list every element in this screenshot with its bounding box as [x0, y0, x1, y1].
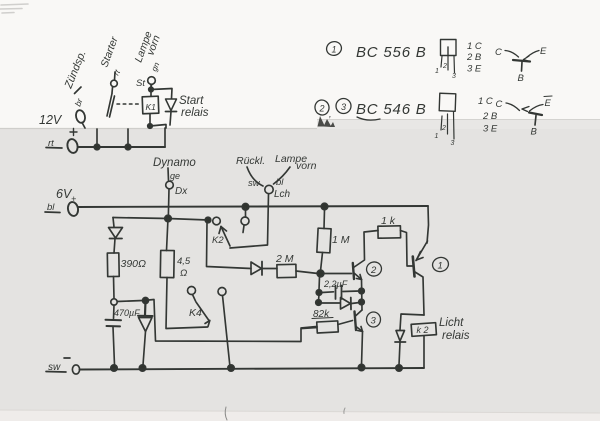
- svg-text:B: B: [531, 127, 538, 138]
- svg-text:2: 2: [319, 104, 325, 114]
- svg-text:Ω: Ω: [180, 268, 187, 279]
- svg-text:3: 3: [452, 73, 456, 80]
- svg-text:3: 3: [371, 316, 377, 327]
- svg-text:St: St: [136, 78, 145, 89]
- svg-text:vorn: vorn: [296, 160, 317, 172]
- svg-text:Start: Start: [179, 95, 204, 107]
- svg-text:2 B: 2 B: [466, 52, 482, 63]
- svg-text:k 2: k 2: [417, 325, 429, 335]
- svg-text:BC 556 B: BC 556 B: [356, 44, 427, 61]
- svg-text:1 k: 1 k: [381, 215, 396, 227]
- svg-text:12V: 12V: [39, 113, 63, 127]
- svg-text:3: 3: [341, 102, 346, 112]
- svg-text:2 B: 2 B: [482, 111, 498, 122]
- svg-text:,: ,: [329, 109, 332, 119]
- svg-text:1: 1: [435, 68, 439, 75]
- svg-text:Licht: Licht: [439, 317, 464, 329]
- svg-text:1 C: 1 C: [467, 41, 482, 52]
- svg-text:2: 2: [370, 265, 377, 276]
- svg-text:Dx: Dx: [175, 186, 188, 197]
- svg-text:relais: relais: [181, 107, 209, 119]
- svg-text:3: 3: [451, 140, 455, 147]
- svg-text:1: 1: [438, 261, 443, 272]
- svg-text:E: E: [540, 46, 547, 57]
- svg-text:E: E: [545, 98, 552, 109]
- svg-text:Dynamo: Dynamo: [153, 157, 196, 169]
- svg-text:Lch: Lch: [274, 189, 291, 200]
- svg-text:C: C: [496, 99, 503, 110]
- svg-text:ge: ge: [170, 171, 180, 181]
- svg-text:2: 2: [442, 63, 447, 70]
- svg-text:K2: K2: [212, 235, 224, 246]
- svg-text:K4: K4: [189, 307, 202, 319]
- svg-text:B: B: [518, 73, 525, 84]
- svg-text:4,5: 4,5: [177, 256, 191, 267]
- svg-text:390Ω: 390Ω: [121, 258, 147, 270]
- svg-text:bl: bl: [276, 177, 284, 188]
- svg-text:3 E: 3 E: [483, 124, 498, 135]
- svg-text:Rückl.: Rückl.: [236, 155, 265, 167]
- svg-text:1: 1: [435, 133, 439, 140]
- svg-text:2: 2: [441, 125, 446, 132]
- svg-text:C: C: [495, 47, 502, 58]
- svg-text:1 C: 1 C: [478, 96, 493, 107]
- svg-text:470µF: 470µF: [114, 308, 140, 318]
- svg-text:1 M: 1 M: [332, 234, 350, 246]
- svg-text:1: 1: [332, 45, 337, 55]
- svg-text:K1: K1: [146, 102, 157, 112]
- svg-text:relais: relais: [442, 330, 470, 342]
- svg-text:BC 546 B: BC 546 B: [356, 101, 427, 118]
- svg-text:2 M: 2 M: [275, 253, 294, 265]
- svg-text:3 E: 3 E: [467, 64, 482, 75]
- svg-text:sw: sw: [248, 178, 261, 189]
